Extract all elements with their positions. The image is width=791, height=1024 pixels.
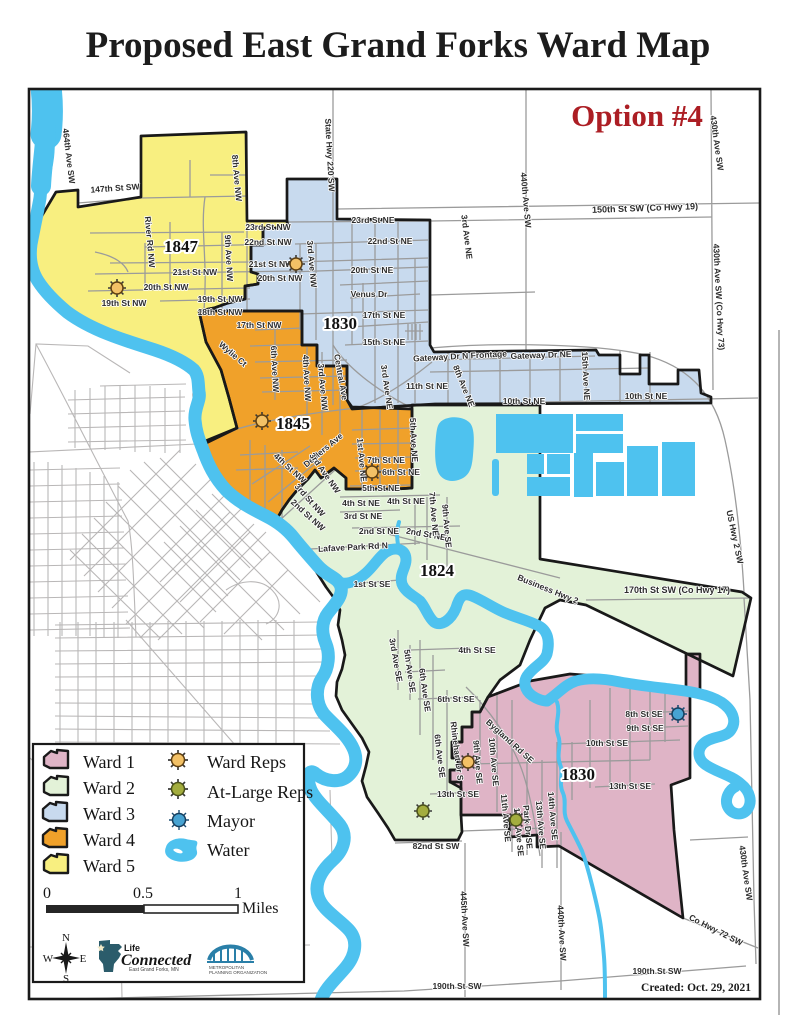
svg-text:6th St NE: 6th St NE <box>382 467 420 477</box>
svg-text:1st St SE: 1st St SE <box>354 579 391 589</box>
svg-text:19th St NW: 19th St NW <box>198 294 244 304</box>
svg-text:E: E <box>80 953 87 965</box>
svg-text:2nd St NE: 2nd St NE <box>359 526 399 536</box>
svg-text:23rd St NW: 23rd St NW <box>245 222 291 232</box>
svg-text:22nd St NE: 22nd St NE <box>368 236 413 246</box>
svg-text:22nd St NW: 22nd St NW <box>244 237 292 247</box>
svg-text:Option #4: Option #4 <box>571 98 703 133</box>
svg-text:8th St SE: 8th St SE <box>625 709 663 719</box>
svg-text:10th St NE: 10th St NE <box>625 391 668 401</box>
svg-text:21st St NW: 21st St NW <box>173 267 218 277</box>
svg-text:10th St NE: 10th St NE <box>503 396 546 406</box>
svg-text:6th St SE: 6th St SE <box>437 694 475 704</box>
svg-text:13th St SE: 13th St SE <box>609 781 651 791</box>
svg-text:10th St SE: 10th St SE <box>586 738 628 748</box>
svg-text:Mayor: Mayor <box>207 811 255 831</box>
svg-text:82nd St SW: 82nd St SW <box>413 841 461 851</box>
svg-text:Venus Dr: Venus Dr <box>351 289 389 299</box>
svg-text:4th St SE: 4th St SE <box>458 645 496 655</box>
svg-text:20th St NE: 20th St NE <box>351 265 394 275</box>
svg-text:East Grand Forks, MN: East Grand Forks, MN <box>129 967 179 973</box>
svg-text:3rd St NE: 3rd St NE <box>344 511 383 521</box>
svg-text:13th St SE: 13th St SE <box>437 789 479 799</box>
svg-text:Ward 5: Ward 5 <box>83 856 135 876</box>
svg-text:Miles: Miles <box>242 900 278 917</box>
svg-text:0.5: 0.5 <box>133 885 153 902</box>
svg-text:17th St NW: 17th St NW <box>237 320 283 330</box>
svg-text:At-Large Reps: At-Large Reps <box>207 782 313 802</box>
svg-text:Ward 4: Ward 4 <box>83 830 135 850</box>
svg-text:S: S <box>63 973 69 985</box>
svg-text:1845: 1845 <box>276 414 310 433</box>
svg-text:18th St NW: 18th St NW <box>198 307 244 317</box>
svg-text:20th St NW: 20th St NW <box>258 273 304 283</box>
svg-text:Ward 2: Ward 2 <box>83 778 135 798</box>
svg-text:W: W <box>43 953 54 965</box>
svg-text:190th St SW: 190th St SW <box>432 981 482 991</box>
svg-text:1847: 1847 <box>164 237 199 256</box>
svg-text:PLANNING ORGANIZATION: PLANNING ORGANIZATION <box>209 970 267 975</box>
svg-text:Created: Oct. 29, 2021: Created: Oct. 29, 2021 <box>641 982 751 994</box>
svg-text:N: N <box>62 932 70 944</box>
svg-text:11th St NE: 11th St NE <box>406 381 448 391</box>
svg-text:7th St NE: 7th St NE <box>367 455 405 465</box>
svg-text:5th St NE: 5th St NE <box>362 483 400 493</box>
svg-text:Ward 1: Ward 1 <box>83 752 135 772</box>
svg-text:4th St NE: 4th St NE <box>342 498 380 508</box>
svg-text:1824: 1824 <box>420 561 455 580</box>
svg-text:Gateway Dr NE: Gateway Dr NE <box>510 349 572 361</box>
svg-text:0: 0 <box>43 885 51 902</box>
svg-text:Water: Water <box>207 840 250 860</box>
svg-text:23rd St NE: 23rd St NE <box>352 215 395 225</box>
svg-text:1: 1 <box>234 885 242 902</box>
svg-text:1830: 1830 <box>323 314 357 333</box>
svg-text:19th St NW: 19th St NW <box>102 298 148 308</box>
svg-text:170th St SW (Co Hwy 17): 170th St SW (Co Hwy 17) <box>624 585 730 595</box>
svg-text:9th St SE: 9th St SE <box>626 723 664 733</box>
svg-text:Ward 3: Ward 3 <box>83 804 135 824</box>
svg-text:1830: 1830 <box>561 765 595 784</box>
svg-text:20th St NW: 20th St NW <box>144 282 190 292</box>
svg-text:15th St NE: 15th St NE <box>363 337 406 347</box>
svg-text:Proposed East Grand Forks Ward: Proposed East Grand Forks Ward Map <box>86 25 711 66</box>
svg-text:Ward Reps: Ward Reps <box>207 752 286 772</box>
svg-text:190th St SW: 190th St SW <box>632 966 682 976</box>
svg-text:17th St NE: 17th St NE <box>363 310 406 320</box>
svg-text:4th St NE: 4th St NE <box>387 496 425 506</box>
